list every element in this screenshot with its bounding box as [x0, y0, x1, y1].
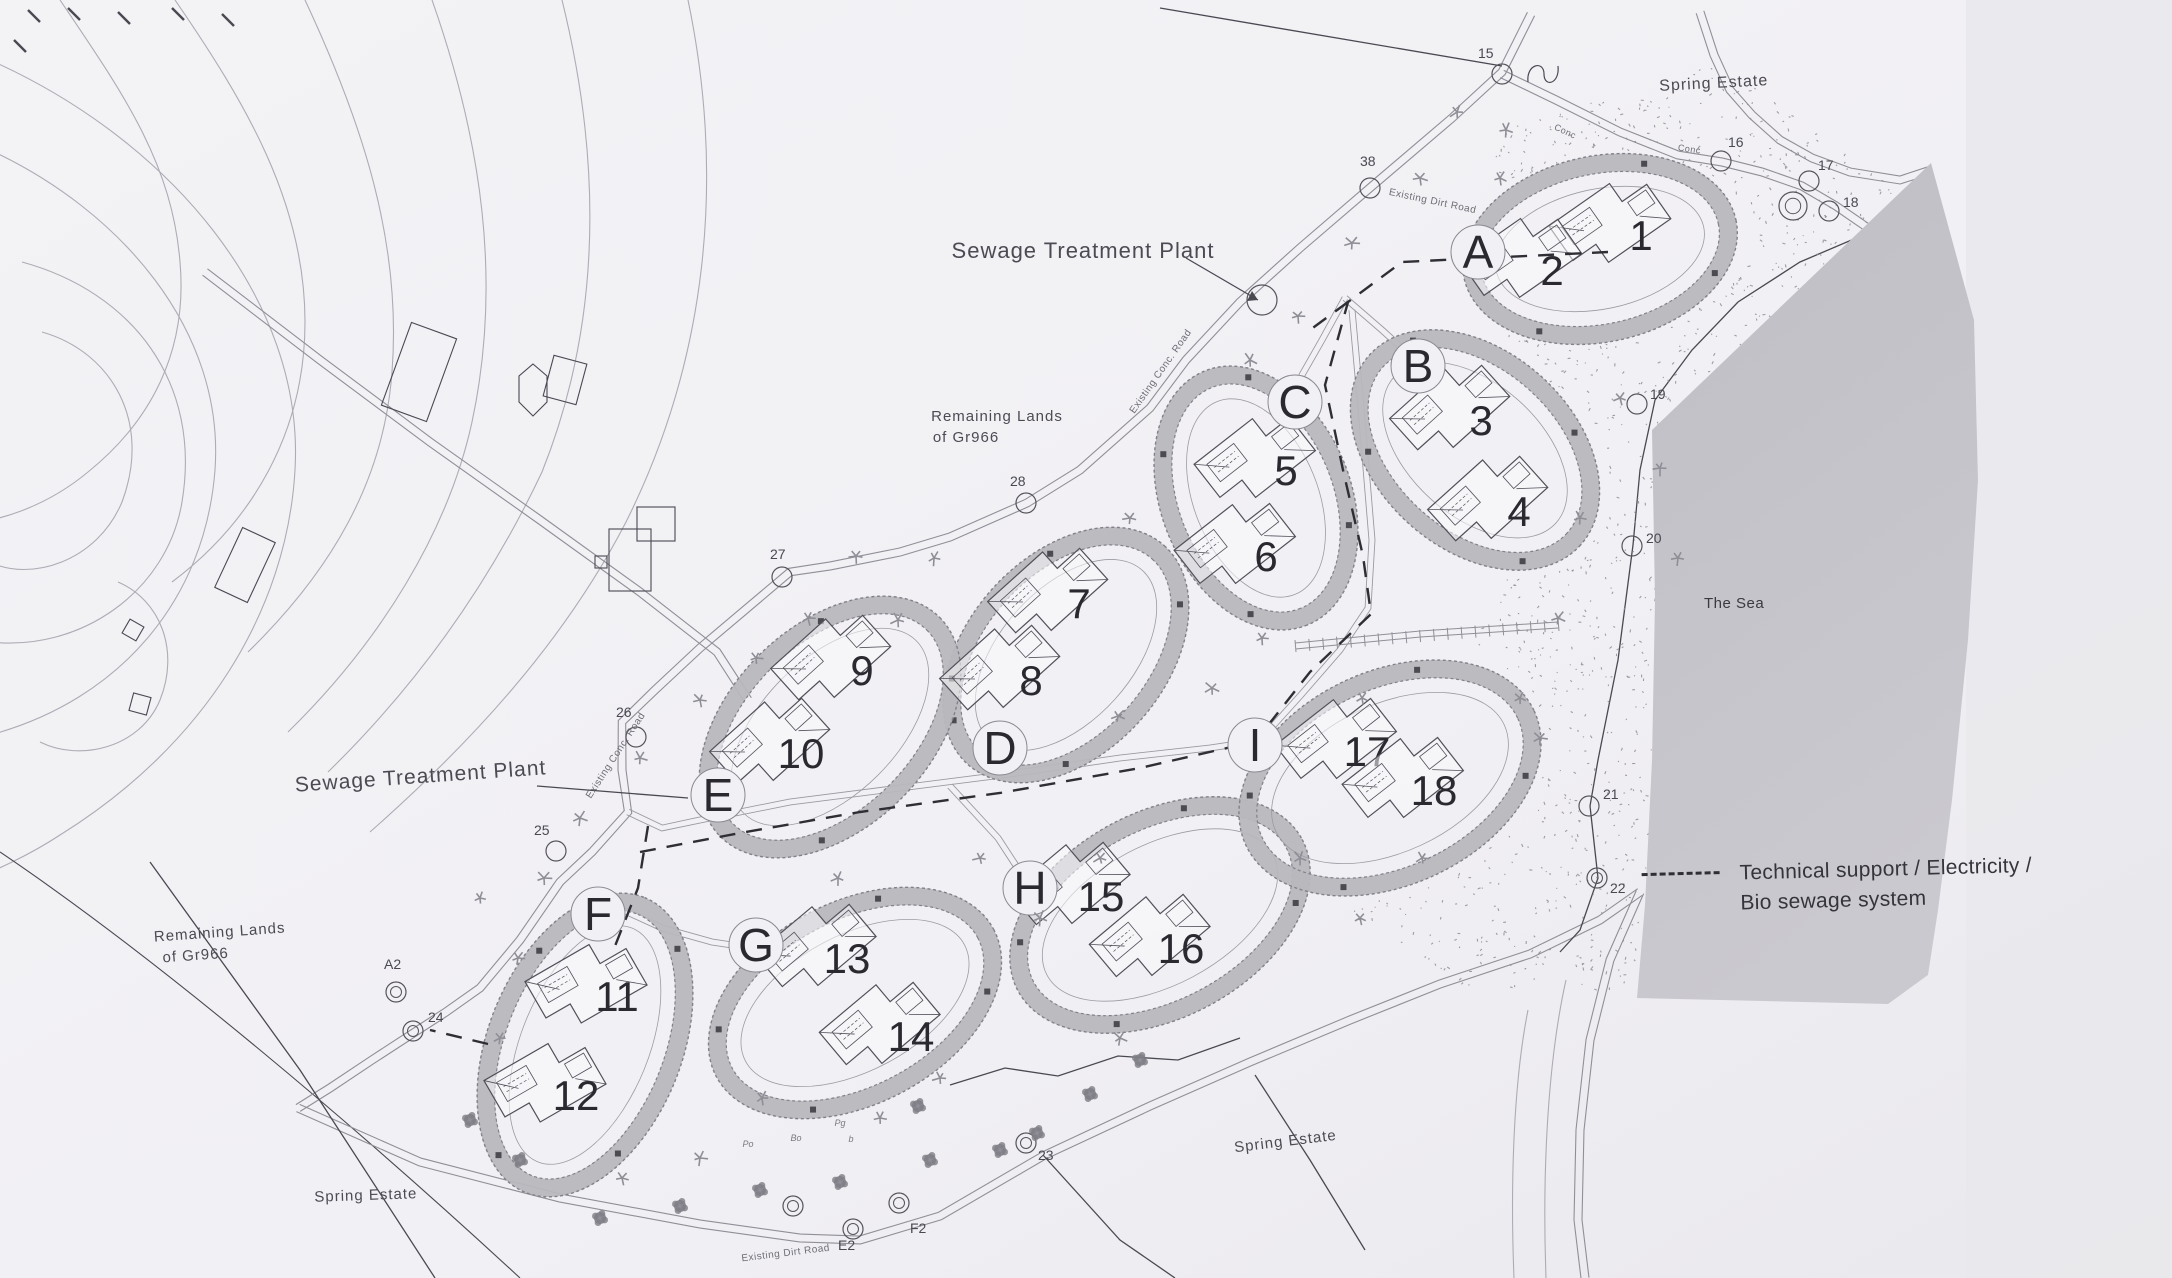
sea-area-label: The Sea — [1704, 595, 1764, 612]
survey-marker-label: 22 — [1610, 880, 1626, 896]
survey-marker-label: A2 — [384, 956, 401, 972]
plot-letter-A: A — [1463, 226, 1494, 278]
vegetation-label: b — [848, 1134, 853, 1144]
area-label: of Gr966 — [933, 429, 999, 446]
area-label: Sewage Treatment Plant — [952, 238, 1215, 263]
plot-letter-D: D — [983, 722, 1016, 774]
survey-marker-label: 25 — [534, 822, 550, 838]
plot-letter-I: I — [1249, 719, 1262, 771]
villa-number: 12 — [553, 1072, 600, 1119]
villa-number: 4 — [1507, 488, 1530, 535]
villa-number: 13 — [824, 935, 871, 982]
plot-letter-G: G — [738, 919, 774, 971]
survey-marker-label: 19 — [1650, 386, 1666, 402]
vegetation-label: Bo — [790, 1133, 801, 1143]
survey-marker-label: 20 — [1646, 530, 1662, 546]
legend: Technical support / Electricity / Bio se… — [1641, 851, 2033, 922]
survey-marker-label: 15 — [1478, 45, 1494, 61]
dashed-line-legend-symbol — [1642, 871, 1720, 876]
paper-right-strip — [1966, 0, 2172, 1278]
vegetation-label: Po — [742, 1139, 753, 1149]
site-plan-photo: 123456789101112131415161718ABCDEFGHI1516… — [0, 0, 2172, 1278]
plot-letter-H: H — [1013, 862, 1046, 914]
survey-marker-label: 23 — [1038, 1147, 1054, 1163]
villa-number: 5 — [1274, 447, 1297, 494]
survey-marker-label: 16 — [1728, 134, 1744, 150]
villa-number: 9 — [850, 647, 873, 694]
survey-marker-label: E2 — [838, 1237, 855, 1253]
villa-number: 11 — [595, 973, 639, 1020]
plot-letter-F: F — [584, 888, 612, 940]
survey-marker-label: F2 — [910, 1220, 927, 1236]
villa-number: 1 — [1629, 212, 1652, 259]
survey-marker-label: 21 — [1603, 786, 1619, 802]
survey-marker-label: 28 — [1010, 473, 1026, 489]
survey-marker-label: 26 — [616, 704, 632, 720]
villa-number: 14 — [888, 1013, 935, 1060]
legend-text: Technical support / Electricity / Bio se… — [1739, 851, 2033, 920]
villa-number: 16 — [1158, 925, 1205, 972]
area-label: Spring Estate — [314, 1185, 418, 1206]
villa-number: 10 — [778, 730, 825, 777]
survey-marker-label: 24 — [428, 1009, 444, 1025]
plot-letter-E: E — [703, 769, 734, 821]
site-plan-drawing: 123456789101112131415161718ABCDEFGHI1516… — [0, 0, 2172, 1278]
survey-marker-label: 18 — [1843, 194, 1859, 210]
survey-marker-label: 27 — [770, 546, 786, 562]
area-label: Remaining Lands — [931, 408, 1063, 425]
plot-letter-B: B — [1403, 340, 1434, 392]
villa-number: 8 — [1019, 657, 1042, 704]
survey-marker-label: 17 — [1818, 157, 1834, 173]
villa-number: 3 — [1469, 397, 1492, 444]
survey-marker-label: 38 — [1360, 153, 1376, 169]
villa-number: 15 — [1078, 873, 1125, 920]
villa-number: 6 — [1254, 533, 1277, 580]
villa-number: 7 — [1067, 580, 1090, 627]
vegetation-label: Pg — [834, 1118, 845, 1128]
plot-letter-C: C — [1278, 376, 1311, 428]
villa-number: 18 — [1411, 767, 1458, 814]
